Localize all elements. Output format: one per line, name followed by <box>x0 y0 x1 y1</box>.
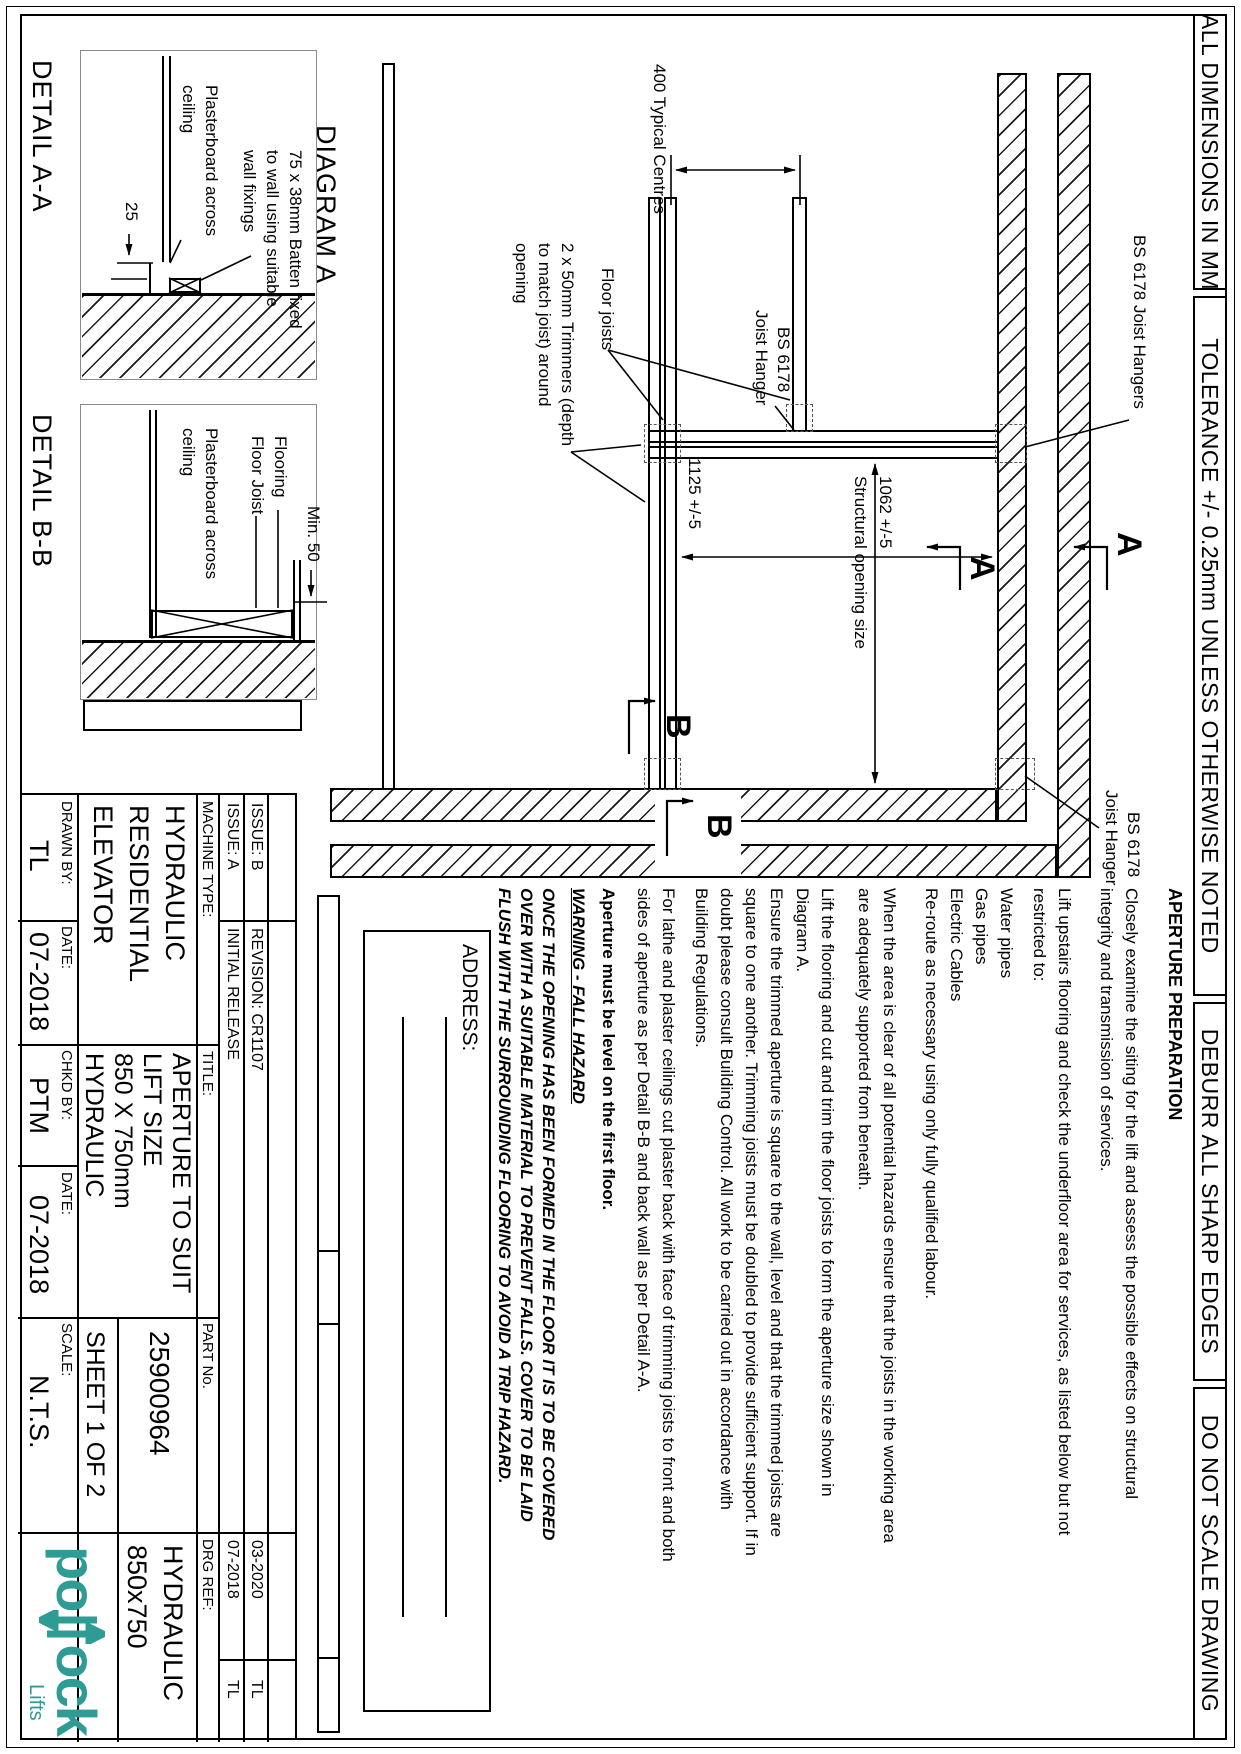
section-a-letter: A <box>962 556 1001 581</box>
rotated-sheet-wrapper: ALL DIMENSIONS IN MM TOLERANCE +/- 0.25m… <box>0 0 1241 1754</box>
detail-aa-dim25: 25 <box>121 202 141 221</box>
drawing-sheet: ALL DIMENSIONS IN MM TOLERANCE +/- 0.25m… <box>0 0 1241 1754</box>
issue-b-by: TL <box>247 1680 265 1699</box>
logo-text-left: po <box>44 1546 109 1610</box>
dim-centres-label: 400 Typical Centres <box>649 64 669 214</box>
notes-p4: When the area is clear of all potential … <box>852 888 902 1543</box>
detail-aa-batten-label2: to wall using suitable <box>262 150 282 307</box>
issue-a-by: TL <box>223 1680 241 1699</box>
detail-bb-flooring-line2 <box>293 560 295 640</box>
detail-bb-flooring-line1 <box>299 560 301 640</box>
logo-sub-text: Lifts <box>24 1684 47 1721</box>
drawn-by-value: TL <box>21 840 57 872</box>
floor-joist-lower <box>382 63 395 788</box>
joist-hanger-symbol <box>786 404 813 432</box>
notes-p1: Closely examine the siting for the lift … <box>1094 888 1144 1499</box>
notes-p8: Aperture must be level on the first floo… <box>596 888 621 1210</box>
date1-value: 07-2018 <box>21 932 57 1031</box>
warning-title: WARNING - FALL HAZARD <box>566 888 591 1104</box>
section-b-letter: B <box>658 714 697 739</box>
strip-divider <box>317 1250 340 1252</box>
drg-ref-label: DRG REF: <box>199 1539 216 1611</box>
floor-joists-label: Floor joists <box>597 268 617 350</box>
section-b-letter: B <box>699 814 738 839</box>
detail-bb-wall <box>82 640 315 698</box>
machine-type-value: HYDRAULIC RESIDENTIAL ELEVATOR <box>85 805 193 982</box>
notes-bar-tolerance: TOLERANCE +/- 0.25mm UNLESS OTHERWISE NO… <box>1193 296 1227 996</box>
detail-bb-min50: Min. 50 <box>303 506 323 562</box>
dim-width-label: 1125 +/-5 <box>684 458 704 529</box>
wall-outer-leaf-top <box>1057 73 1091 878</box>
joist-hanger-symbol <box>995 758 1035 790</box>
logo-text-right: ock <box>44 1644 109 1735</box>
trimmers-label: 2 x 50mm Trimmers (depth <box>557 243 577 446</box>
spare-strip <box>317 895 340 1733</box>
pollock-logo: poock Lifts <box>18 1534 117 1742</box>
notes-p3: Water pipes Gas pipes Electric Cables Re… <box>919 888 1019 1299</box>
detail-aa-stub-line <box>149 263 151 293</box>
address-label: ADDRESS: <box>457 944 481 1051</box>
detail-bb-plaster-line1 <box>155 410 157 638</box>
scale-label: SCALE: <box>58 1323 75 1376</box>
section-a-letter: A <box>1109 532 1148 557</box>
detail-bb-plaster-label: Plasterboard across <box>201 428 221 579</box>
dim-depth-caption: Structural opening size <box>850 476 870 649</box>
date2-value: 07-2018 <box>21 1195 57 1294</box>
issue-a: ISSUE: A <box>223 803 241 870</box>
issue-b: ISSUE: B <box>247 803 265 871</box>
wall-continuation-outline <box>83 700 302 731</box>
notes-bar-dimensions: ALL DIMENSIONS IN MM <box>1193 14 1227 290</box>
detail-bb-joist-label: Floor Joist <box>247 436 267 514</box>
detail-aa-plaster-label: Plasterboard across <box>201 85 221 236</box>
title-block: ISSUE: B REVISION: CR1107 03-2020 TL ISS… <box>20 793 297 1740</box>
notes-p2: Lift upstairs flooring and check the und… <box>1027 888 1077 1535</box>
hanger-left-label: BS 6178 <box>773 327 793 392</box>
hanger-left-label2: Joist Hanger <box>751 310 771 405</box>
sheet-value: SHEET 1 OF 2 <box>77 1331 113 1497</box>
hangers-top-label: BS 6178 Joist Hangers <box>1129 235 1149 409</box>
notes-bar-text: DEBURR ALL SHARP EDGES <box>1197 1029 1224 1354</box>
notes-p5: Lift the flooring and cut and trim the f… <box>790 888 840 1497</box>
machine-type-label: MACHINE TYPE: <box>199 801 216 917</box>
detail-aa-ceiling-line2 <box>162 56 164 262</box>
logo-arrows-icon <box>39 1610 105 1644</box>
detail-bb-plaster-label2: ceiling <box>178 428 198 476</box>
detail-aa-title: DETAIL A-A <box>26 60 57 213</box>
trimmed-joist <box>792 197 807 430</box>
address-line[interactable] <box>445 1017 447 1617</box>
issue-b-date: 03-2020 <box>247 1540 265 1599</box>
joist-hanger-symbol <box>644 758 681 790</box>
issue-a-date: 07-2018 <box>223 1540 241 1599</box>
notes-bar-noscale: DO NOT SCALE DRAWING <box>1193 1387 1227 1740</box>
detail-aa-plaster-label2: ceiling <box>178 85 198 133</box>
strip-divider <box>317 1657 340 1659</box>
detail-aa-batten-label3: wall fixings <box>239 150 259 232</box>
hanger-right-label: BS 6178 <box>1123 812 1143 877</box>
address-box: ADDRESS: <box>363 930 491 1712</box>
notes-column: APERTURE PREPARATION <box>1162 888 1187 1648</box>
part-no-value: 25900964 <box>141 1331 177 1456</box>
detail-bb-plaster-line2 <box>149 410 151 638</box>
drawn-by-label: DRAWN BY: <box>58 801 75 885</box>
notes-heading: APERTURE PREPARATION <box>1162 888 1187 1648</box>
trimmers-label2: to match joist) around <box>534 243 554 406</box>
detail-aa-batten <box>169 278 201 293</box>
trimming-joist-2 <box>648 197 661 788</box>
dim-depth-label: 1062 +/-5 <box>875 476 895 548</box>
chkd-by-label: CHKD BY: <box>58 1050 75 1120</box>
trimmers-label3: opening <box>511 243 531 304</box>
notes-bar-text: TOLERANCE +/- 0.25mm UNLESS OTHERWISE NO… <box>1197 338 1224 954</box>
hanger-right-label2: Joist Hanger <box>1101 790 1121 885</box>
joist-hanger-symbol <box>995 424 1027 463</box>
warning-body: ONCE THE OPENING HAS BEEN FORMED IN THE … <box>493 888 559 1540</box>
notes-bar-text: ALL DIMENSIONS IN MM <box>1197 14 1224 290</box>
detail-aa-batten-label: 75 x 38mm Batten fixed <box>285 150 305 329</box>
notes-bar-deburr: DEBURR ALL SHARP EDGES <box>1193 1002 1227 1381</box>
date2-label: DATE: <box>58 1172 75 1215</box>
part-no-label: PART No. <box>199 1323 216 1389</box>
title-value: APERTURE TO SUIT LIFT SIZE 850 X 750mm H… <box>79 1053 195 1293</box>
trimming-joist-1 <box>664 197 677 788</box>
detail-aa-ceiling-line1 <box>169 56 171 262</box>
date1-label: DATE: <box>58 926 75 969</box>
joist-hanger-symbol <box>644 424 681 463</box>
notes-p6: Ensure the trimmed aperture is square to… <box>689 888 789 1556</box>
revision-b: REVISION: CR1107 <box>247 928 265 1071</box>
notes-p7: For lathe and plaster ceilings cut plast… <box>631 888 681 1562</box>
address-line[interactable] <box>402 1017 404 1617</box>
title-label: TITLE: <box>199 1051 216 1096</box>
detail-bb-title: DETAIL B-B <box>26 414 57 568</box>
trimmer-double-1 <box>648 430 997 443</box>
strip-divider <box>317 1323 340 1325</box>
revision-a: INITIAL RELEASE <box>223 928 241 1060</box>
scale-value: N.T.S. <box>21 1375 57 1449</box>
chkd-by-value: PTM <box>21 1077 57 1134</box>
notes-bar-text: DO NOT SCALE DRAWING <box>1197 1415 1224 1713</box>
drg-ref-value: HYDRAULIC 850x750 <box>119 1545 191 1701</box>
detail-bb-flooring-label: Flooring <box>270 436 290 497</box>
detail-bb-joist <box>151 610 293 638</box>
